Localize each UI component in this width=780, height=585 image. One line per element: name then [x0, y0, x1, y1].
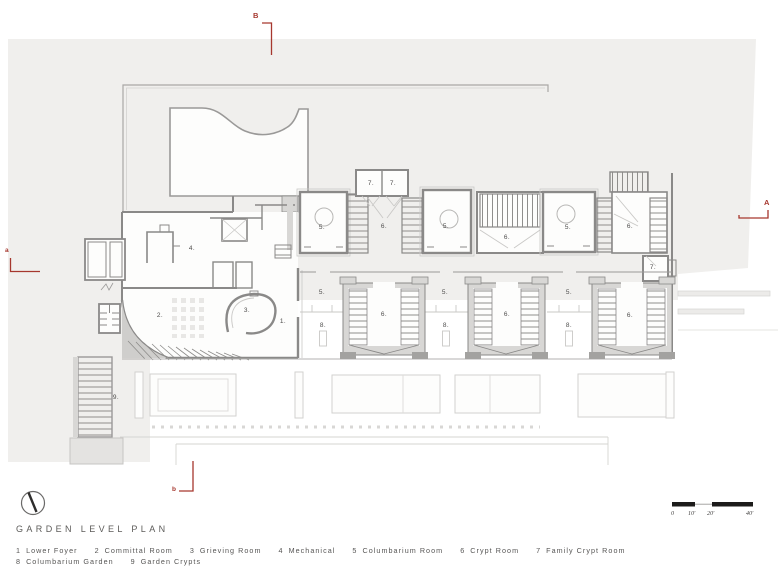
- floor-plan-drawing: [0, 0, 780, 585]
- room-number-label: 1.: [280, 319, 286, 326]
- east-site-walls: [678, 291, 778, 330]
- section-marker-a-right: A: [764, 199, 769, 207]
- legend-item-5: 5Columbarium Room: [352, 547, 443, 554]
- west-wing: [101, 196, 302, 360]
- north-arrow-graphic: [22, 492, 45, 515]
- room-number-label: 8.: [566, 323, 572, 330]
- legend-row-1: 1Lower Foyer2Committal Room3Grieving Roo…: [16, 547, 626, 554]
- room-number-label: 6.: [627, 224, 633, 231]
- section-marker-b-top: B: [253, 12, 258, 20]
- room-number-label: 6.: [381, 312, 387, 319]
- room-number-label: 3.: [244, 308, 250, 315]
- legend-item-9: 9Garden Crypts: [131, 558, 201, 565]
- legend-item-7: 7Family Crypt Room: [536, 547, 625, 554]
- room-number-label: 4.: [189, 246, 195, 253]
- section-marker-b-bottom: b: [172, 487, 176, 494]
- room-number-label: 6.: [381, 224, 387, 231]
- legend-item-2: 2Committal Room: [95, 547, 173, 554]
- scale-bar-graphic: [672, 502, 753, 507]
- room-number-label: 5.: [442, 290, 448, 297]
- legend-item-6: 6Crypt Room: [460, 547, 519, 554]
- room-number-label: 8.: [320, 323, 326, 330]
- room-number-label: 6.: [627, 313, 633, 320]
- scale-label-40: 40': [746, 511, 753, 517]
- garden-level-plan-sheet: 1.2.3.4.5.5.5.6.6.6.7.7.7.5.5.5.8.8.8.6.…: [0, 0, 780, 585]
- columbarium-garden: [70, 357, 674, 465]
- scale-label-0: 0: [671, 511, 674, 517]
- legend-item-3: 3Grieving Room: [190, 547, 262, 554]
- room-number-label: 8.: [443, 323, 449, 330]
- legend-item-4: 4Mechanical: [279, 547, 336, 554]
- drawing-title: GARDEN LEVEL PLAN: [16, 525, 169, 534]
- room-number-label: 7.: [390, 181, 396, 188]
- legend-item-8: 8Columbarium Garden: [16, 558, 114, 565]
- room-number-label: 5.: [566, 290, 572, 297]
- section-marker-a-left: a: [5, 248, 9, 255]
- legend-item-1: 1Lower Foyer: [16, 547, 78, 554]
- room-number-label: 9.: [113, 395, 119, 402]
- room-number-label: 7.: [368, 181, 374, 188]
- scale-label-10: 10': [688, 511, 695, 517]
- room-number-label: 5.: [443, 224, 449, 231]
- room-number-label: 2.: [157, 313, 163, 320]
- room-number-label: 7.: [650, 265, 656, 272]
- legend-row-2: 8Columbarium Garden9Garden Crypts: [16, 558, 201, 565]
- room-number-label: 5.: [319, 225, 325, 232]
- room-number-label: 6.: [504, 312, 510, 319]
- room-number-label: 5.: [565, 225, 571, 232]
- scale-label-20: 20': [707, 511, 714, 517]
- room-number-label: 5.: [319, 290, 325, 297]
- room-number-label: 6.: [504, 235, 510, 242]
